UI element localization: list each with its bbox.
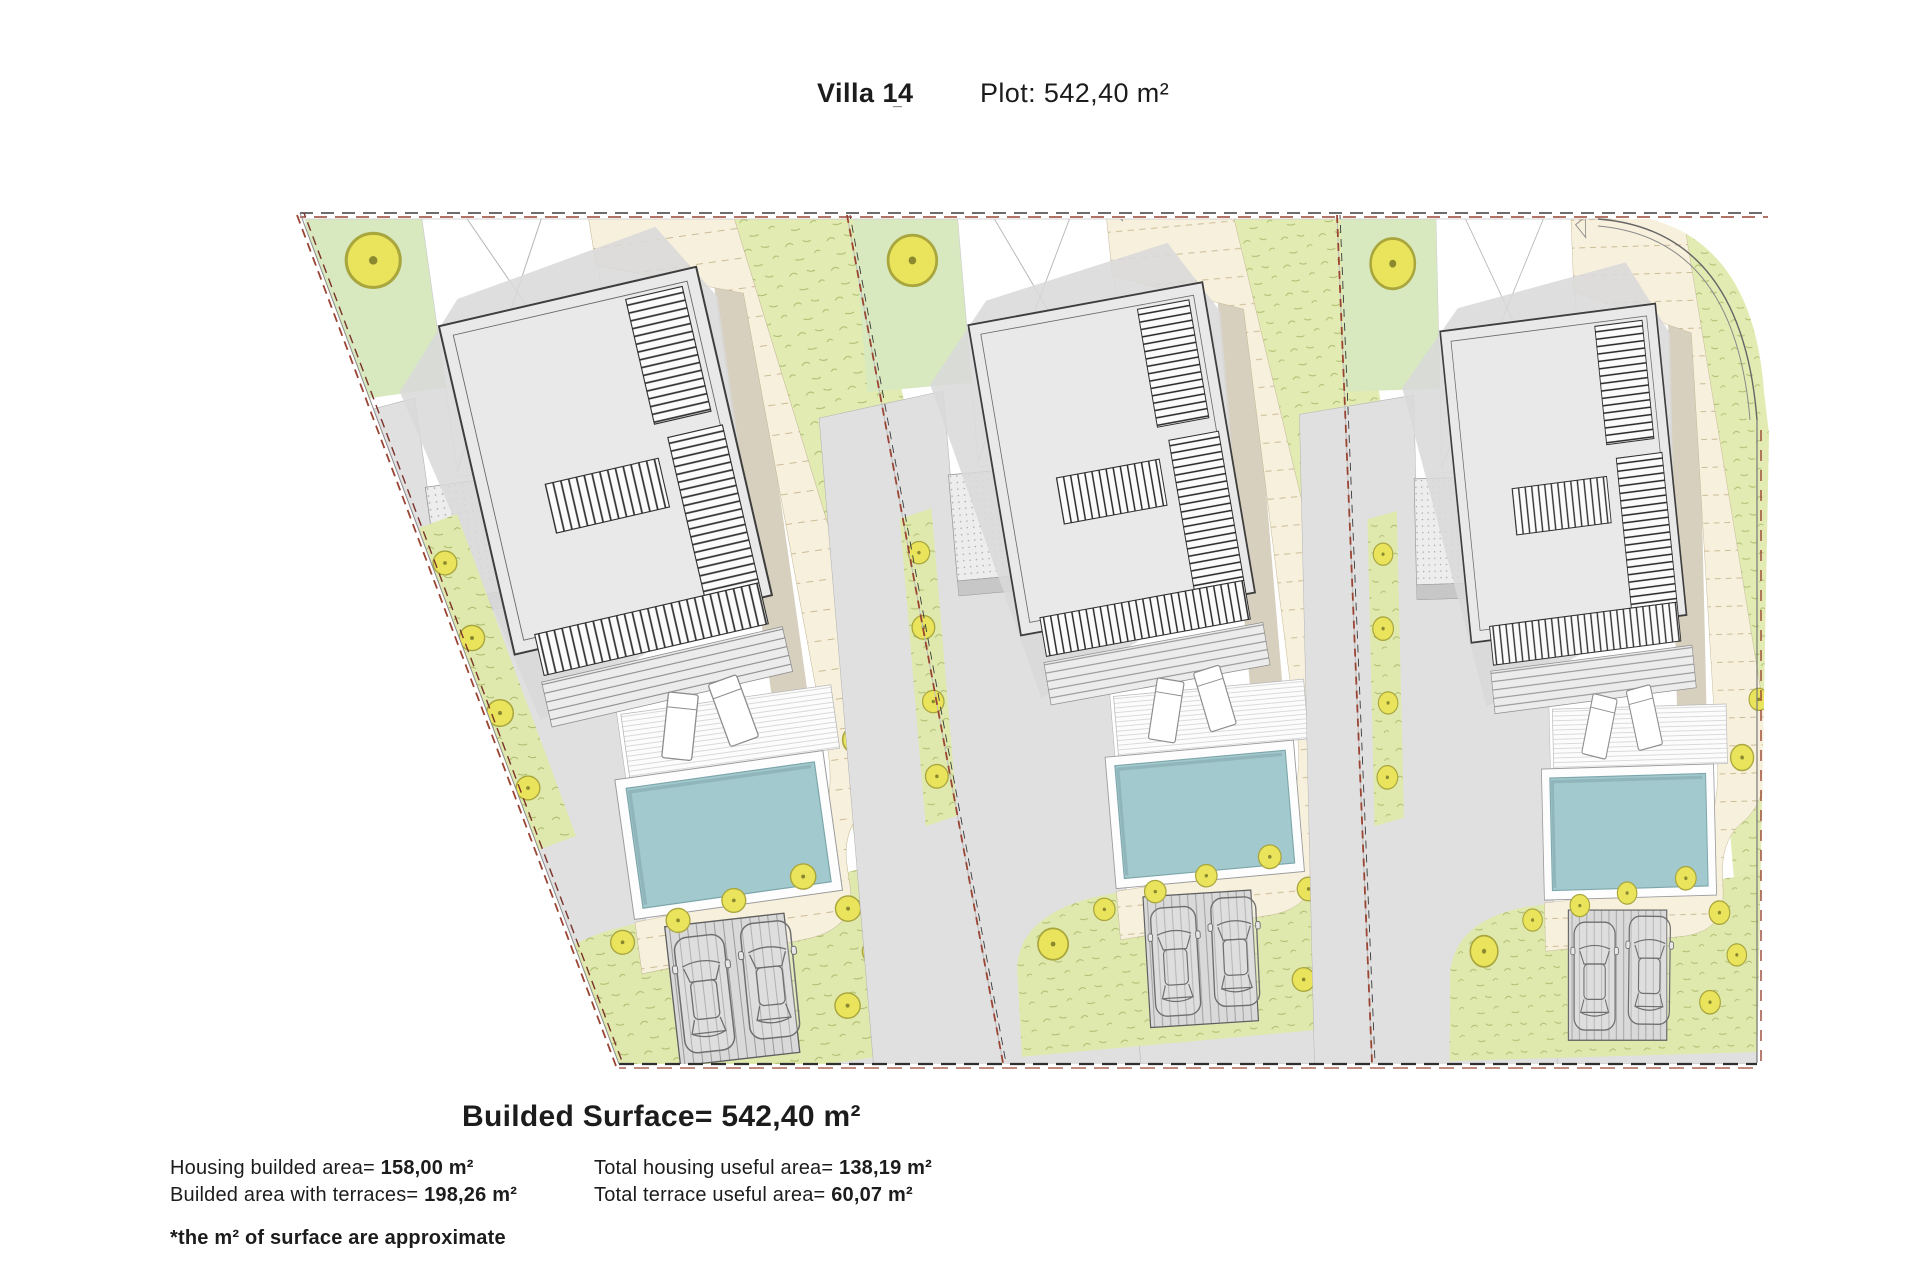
builded-area-terraces-label: Builded area with terraces= xyxy=(170,1184,424,1206)
builded-area-terraces-value: 198,26 m² xyxy=(424,1184,517,1206)
housing-builded-area-row: Housing builded area= 158,00 m² xyxy=(170,1157,474,1180)
total-housing-useful-row: Total housing useful area= 138,19 m² xyxy=(594,1157,932,1180)
builded-area-terraces-row: Builded area with terraces= 198,26 m² xyxy=(170,1184,517,1207)
villa-plot-3 xyxy=(1293,133,1857,1130)
total-housing-useful-value: 138,19 m² xyxy=(839,1157,932,1179)
total-terrace-useful-row: Total terrace useful area= 60,07 m² xyxy=(594,1184,913,1207)
site-plan-drawing xyxy=(0,0,1920,1280)
total-terrace-useful-value: 60,07 m² xyxy=(831,1184,913,1206)
builded-surface-heading: Builded Surface= 542,40 m² xyxy=(462,1100,861,1134)
total-terrace-useful-label: Total terrace useful area= xyxy=(594,1184,831,1206)
housing-builded-area-value: 158,00 m² xyxy=(381,1157,474,1179)
approximate-footnote: *the m² of surface are approximate xyxy=(170,1227,506,1250)
housing-builded-area-label: Housing builded area= xyxy=(170,1157,381,1179)
total-housing-useful-label: Total housing useful area= xyxy=(594,1157,839,1179)
